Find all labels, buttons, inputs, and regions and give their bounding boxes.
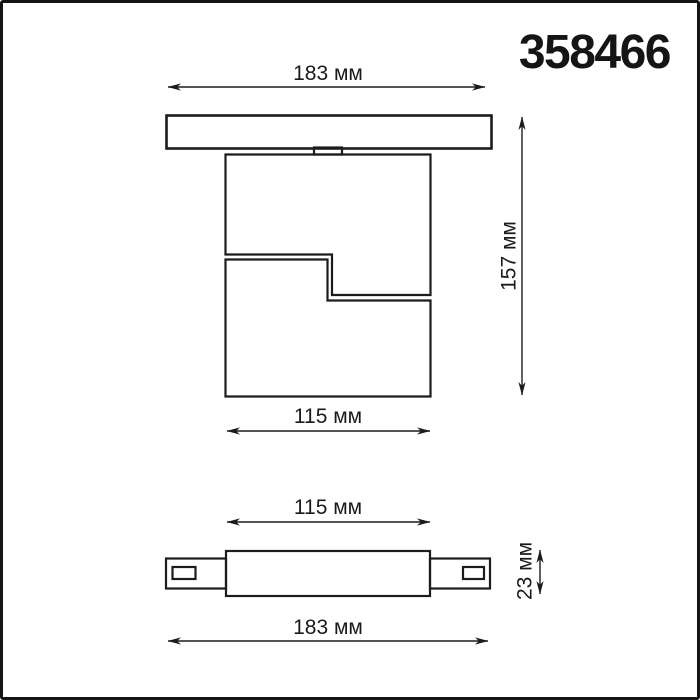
track-left-end-slot	[173, 567, 196, 579]
track-right-end-slot	[463, 567, 484, 579]
front-height-dim-label: 157 мм	[498, 221, 521, 291]
top-depth-dim-label: 23 мм	[514, 542, 537, 600]
top-view: 115 мм 23 мм 183 мм	[166, 496, 540, 641]
lamp-body-lower-section	[226, 260, 431, 397]
model-number: 358466	[519, 26, 670, 79]
top-body-width-dim-label: 115 мм	[294, 496, 362, 519]
top-track-width-dim-label: 183 мм	[293, 616, 363, 639]
front-track-width-dim-label: 183 мм	[293, 62, 363, 85]
front-view: 183 мм 157 мм 115 мм	[167, 62, 523, 431]
drawing-canvas: 358466 183 мм 157 мм 115 мм 1	[0, 0, 700, 700]
technical-drawing: 358466 183 мм 157 мм 115 мм 1	[3, 3, 700, 700]
track-central-body	[226, 551, 430, 596]
track-adapter-plate	[167, 116, 492, 149]
front-body-width-dim-label: 115 мм	[294, 405, 362, 428]
track-right-end-tab	[430, 559, 490, 589]
